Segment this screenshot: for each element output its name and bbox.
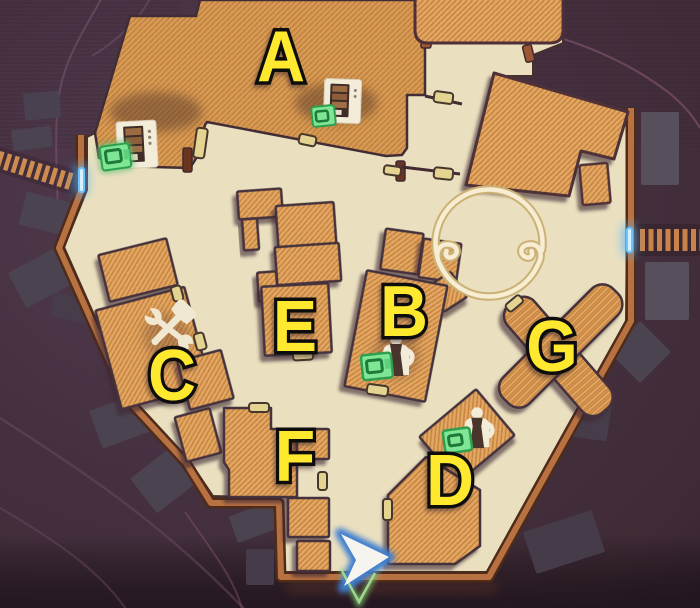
svg-text:F: F [275, 415, 315, 496]
svg-text:G: G [526, 305, 578, 386]
svg-text:C: C [148, 334, 196, 415]
svg-text:B: B [380, 270, 428, 351]
svg-text:A: A [257, 15, 305, 96]
svg-text:D: D [426, 439, 474, 520]
svg-text:E: E [273, 285, 317, 366]
